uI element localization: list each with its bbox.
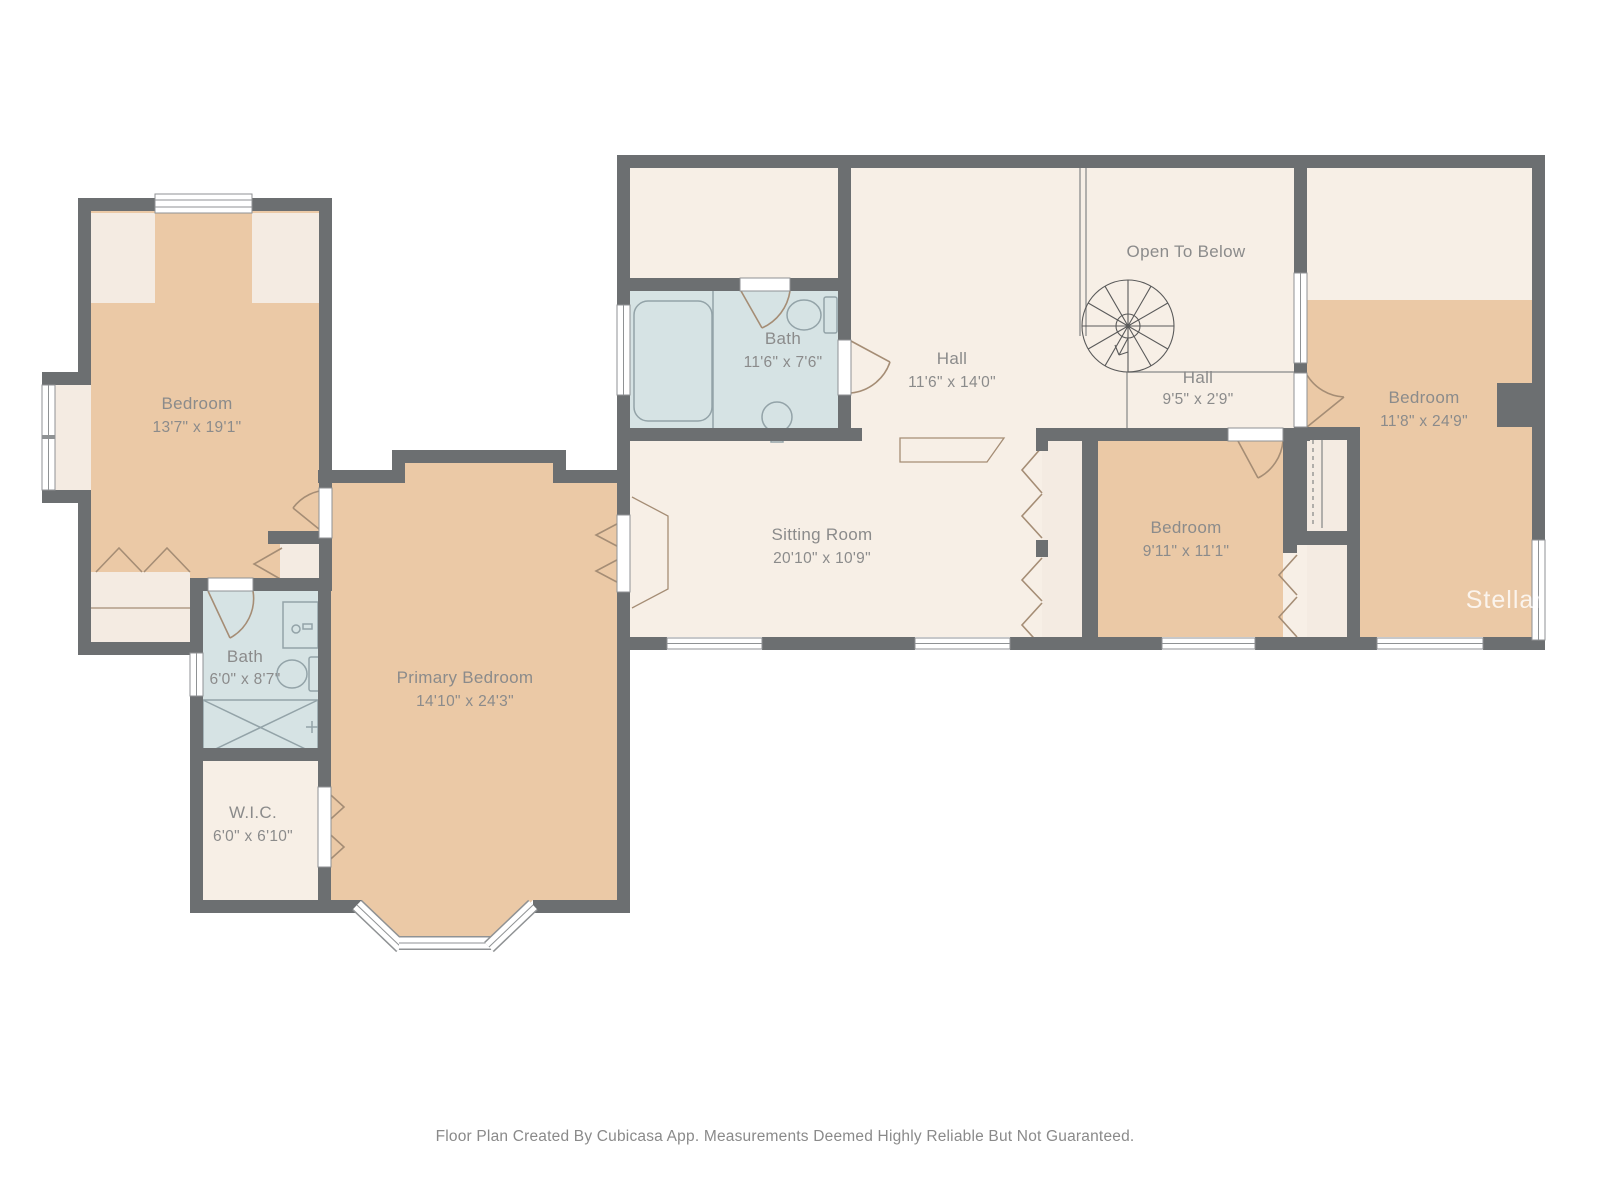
window xyxy=(1162,638,1255,649)
room-label-bedroom-mid: Bedroom xyxy=(1150,518,1221,537)
wardrobe-left xyxy=(91,213,155,303)
wardrobe-right xyxy=(252,213,319,303)
footer-disclaimer: Floor Plan Created By Cubicasa App. Meas… xyxy=(436,1128,1135,1145)
room-label-wic: W.I.C. xyxy=(229,803,277,822)
floor-plan-page: Bedroom 13'7" x 19'1" Bath 6'0" x 8'7" W… xyxy=(0,0,1600,1200)
room-label-open-to-below: Open To Below xyxy=(1127,242,1246,261)
window xyxy=(190,653,203,696)
room-dims-wic: 6'0" x 6'10" xyxy=(213,828,293,845)
room-dims-bath-mid: 11'6" x 7'6" xyxy=(744,354,823,371)
room-label-sitting-room: Sitting Room xyxy=(772,525,873,544)
closet-floor-sitting xyxy=(1042,441,1082,637)
door-sill xyxy=(617,515,630,592)
room-label-hall-main: Hall xyxy=(937,349,968,368)
door-sill xyxy=(838,340,851,395)
window xyxy=(617,305,630,395)
room-label-bedroom-left: Bedroom xyxy=(161,394,232,413)
room-dims-bedroom-left: 13'7" x 19'1" xyxy=(153,419,242,436)
window xyxy=(915,638,1010,649)
closet-floor-small xyxy=(280,544,319,578)
room-label-hall-small: Hall xyxy=(1183,368,1214,387)
closet-floor-bedroom-left xyxy=(91,572,190,642)
room-dims-hall-main: 11'6" x 14'0" xyxy=(908,374,996,391)
room-floor-bedroom-mid xyxy=(1098,441,1283,637)
floor-plan-drawing: Bedroom 13'7" x 19'1" Bath 6'0" x 8'7" W… xyxy=(0,0,1600,1200)
room-dims-primary: 14'10" x 24'3" xyxy=(416,693,514,710)
room-label-bath-mid: Bath xyxy=(765,329,801,348)
window xyxy=(1377,638,1483,649)
room-dims-sitting-room: 20'10" x 10'9" xyxy=(773,550,871,567)
bay-nook-floor xyxy=(55,385,91,490)
room-dims-bedroom-right: 11'8" x 24'9" xyxy=(1380,413,1468,430)
room-dims-bedroom-mid: 9'11" x 11'1" xyxy=(1143,543,1230,560)
window xyxy=(667,638,762,649)
door-sill xyxy=(740,278,790,291)
closet-floor-right-top xyxy=(1307,440,1347,531)
spiral-staircase-icon xyxy=(1082,280,1174,372)
door-sill xyxy=(318,787,331,867)
window xyxy=(42,385,55,490)
door-sill xyxy=(1228,428,1283,441)
window xyxy=(155,194,252,213)
room-label-primary: Primary Bedroom xyxy=(397,668,534,687)
room-label-bath-left: Bath xyxy=(227,647,263,666)
room-label-bedroom-right: Bedroom xyxy=(1388,388,1459,407)
window xyxy=(1294,273,1307,363)
door-sill xyxy=(208,578,253,591)
door-sill xyxy=(319,488,332,538)
stellar-mls-watermark: StellarMLS xyxy=(1466,586,1598,614)
room-dims-hall-small: 9'5" x 2'9" xyxy=(1162,391,1233,408)
room-dims-bath-left: 6'0" x 8'7" xyxy=(209,671,280,688)
closet-floor-right-bottom xyxy=(1307,545,1347,637)
room-floor-bath-left xyxy=(203,591,318,748)
chimney-block xyxy=(1497,383,1545,427)
door-sill xyxy=(1294,373,1307,427)
